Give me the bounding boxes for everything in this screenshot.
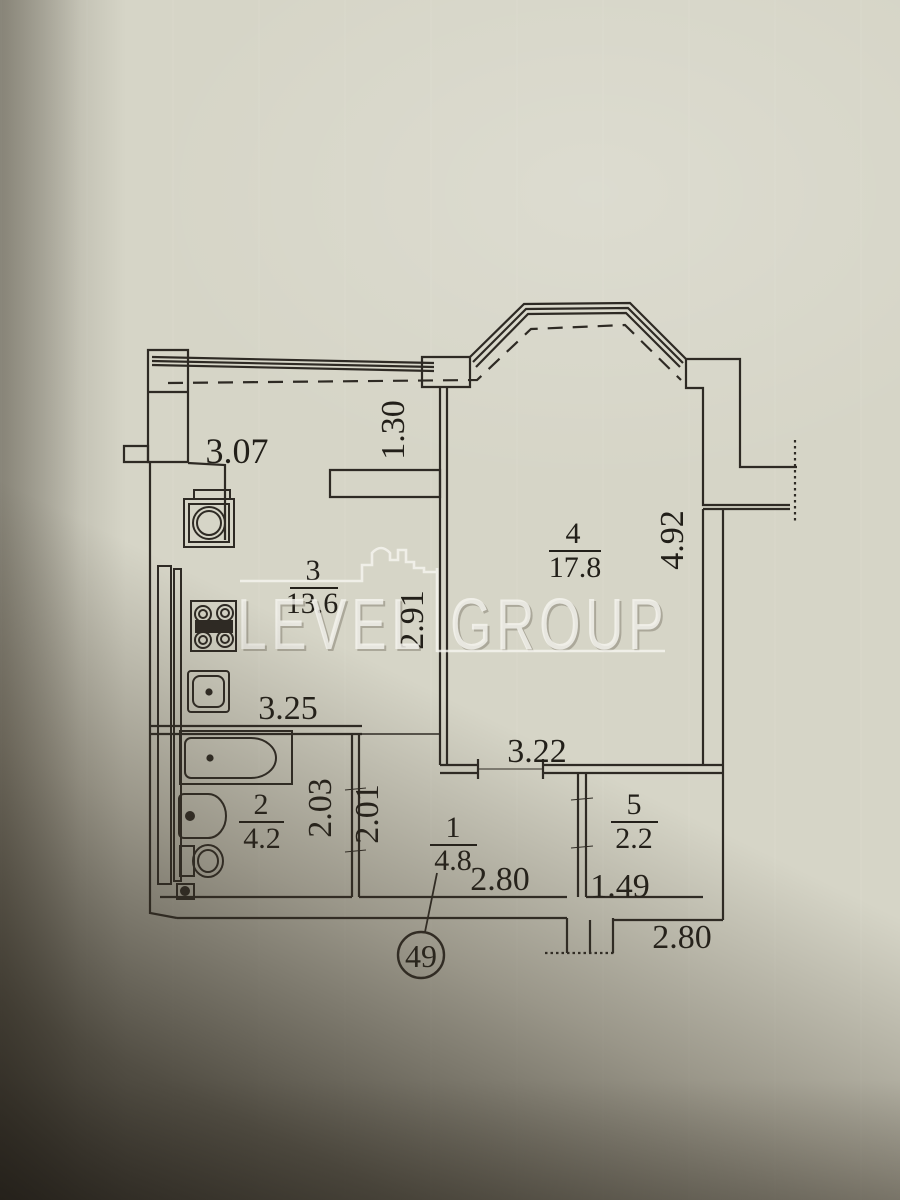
kitchen-window-parapet [330,470,440,497]
floor-plan-drawing: 3 13.6 4 17.8 2 4.2 1 4.8 5 2.2 3.07 1.3… [0,0,900,1200]
dim-kitchen-top-width: 3.07 [206,431,269,471]
room-label-5: 5 2.2 [611,788,658,855]
room2-area: 4.2 [243,822,281,855]
room4-area: 17.8 [549,551,602,584]
apartment-number-badge: 49 [398,932,444,978]
washbasin [179,794,226,838]
top-left-pier [148,350,188,462]
room4-number: 4 [566,517,581,550]
room1-area: 4.8 [434,844,472,877]
window-sill-dashed-line [168,325,681,383]
dim-kitchen-width: 3.25 [258,690,318,727]
apartment-number: 49 [405,938,437,974]
top-right-wall [686,359,797,509]
room-label-2: 2 4.2 [239,788,284,855]
boiler [184,490,234,547]
bay-left-pier [422,357,470,387]
dim-entrance-width: 2.80 [652,919,712,956]
kitchen-room4-wall [440,387,447,765]
dim-loggia-depth: 1.30 [375,400,412,460]
dim-room5-width: 1.49 [590,868,650,905]
apartment-leader-line [425,873,437,932]
room-label-4: 4 17.8 [549,517,602,584]
watermark-left: LEVEL [237,585,425,665]
bathtub [180,731,292,784]
dim-room4-bottom-width: 3.22 [507,733,567,770]
dim-hallway-depth: 2.01 [349,784,386,844]
dim-hallway-width: 2.80 [470,861,530,898]
watermark: LEVEL GROUP LEVEL GROUP [237,548,670,667]
stove [191,601,236,651]
dim-bathroom-depth: 2.03 [302,778,339,838]
kitchen-sink [188,671,229,712]
room5-number: 5 [627,788,642,821]
room5-area: 2.2 [615,822,653,855]
watermark-right: GROUP [450,585,668,665]
left-outer-wall [150,462,177,918]
room2-number: 2 [254,788,269,821]
bay-window [470,303,686,367]
room1-number: 1 [446,811,461,844]
left-wall-notch [124,446,148,462]
photographed-floor-plan: 3 13.6 4 17.8 2 4.2 1 4.8 5 2.2 3.07 1.3… [0,0,900,1200]
room4-bottom-wall [440,759,723,779]
dim-room4-depth: 4.92 [654,510,691,570]
toilet [180,845,223,877]
loggia-window [152,357,434,371]
